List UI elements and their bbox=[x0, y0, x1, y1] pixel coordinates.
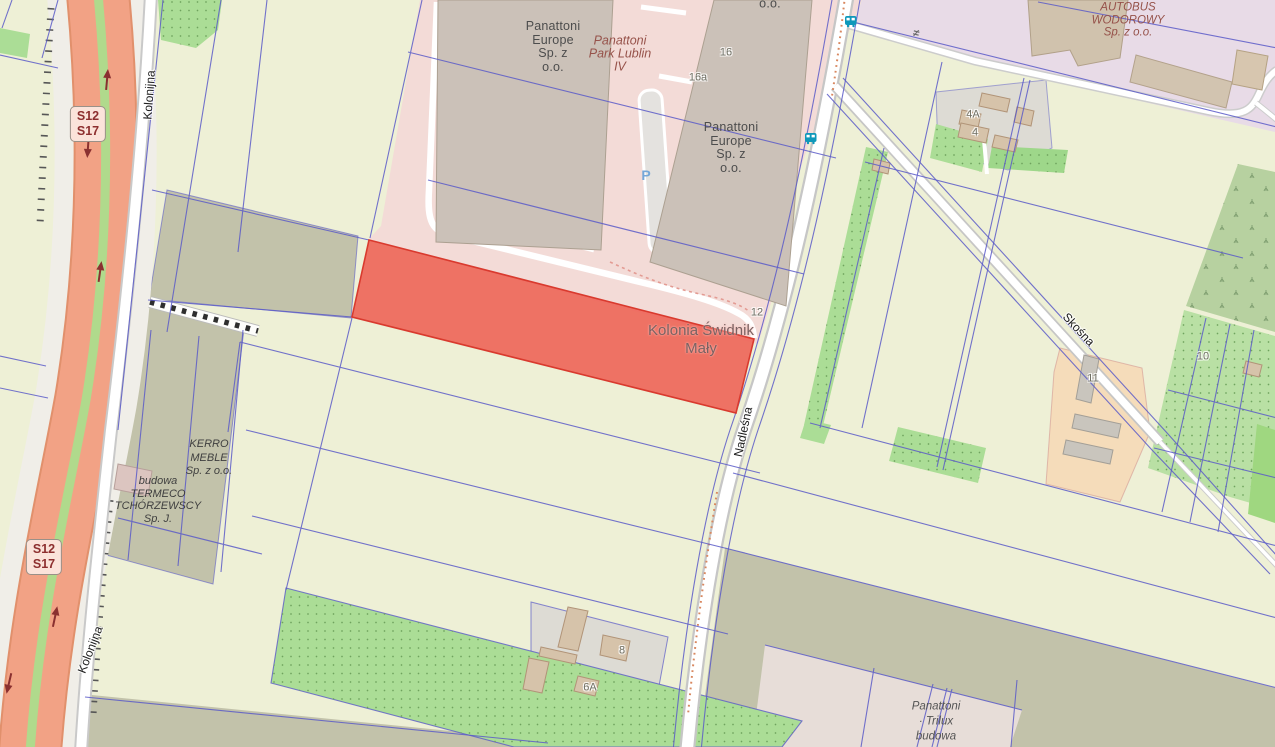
route-shield-s12-s17-bottom: S12 S17 bbox=[26, 539, 62, 575]
warehouse-building-left bbox=[436, 0, 613, 250]
map-svg bbox=[0, 0, 1275, 747]
route-shield-s12-s17-top: S12 S17 bbox=[70, 106, 106, 142]
map-canvas[interactable]: Panattoni Europe Sp. z o.o. Panattoni Pa… bbox=[0, 0, 1275, 747]
building-top-right-3 bbox=[1232, 50, 1268, 90]
